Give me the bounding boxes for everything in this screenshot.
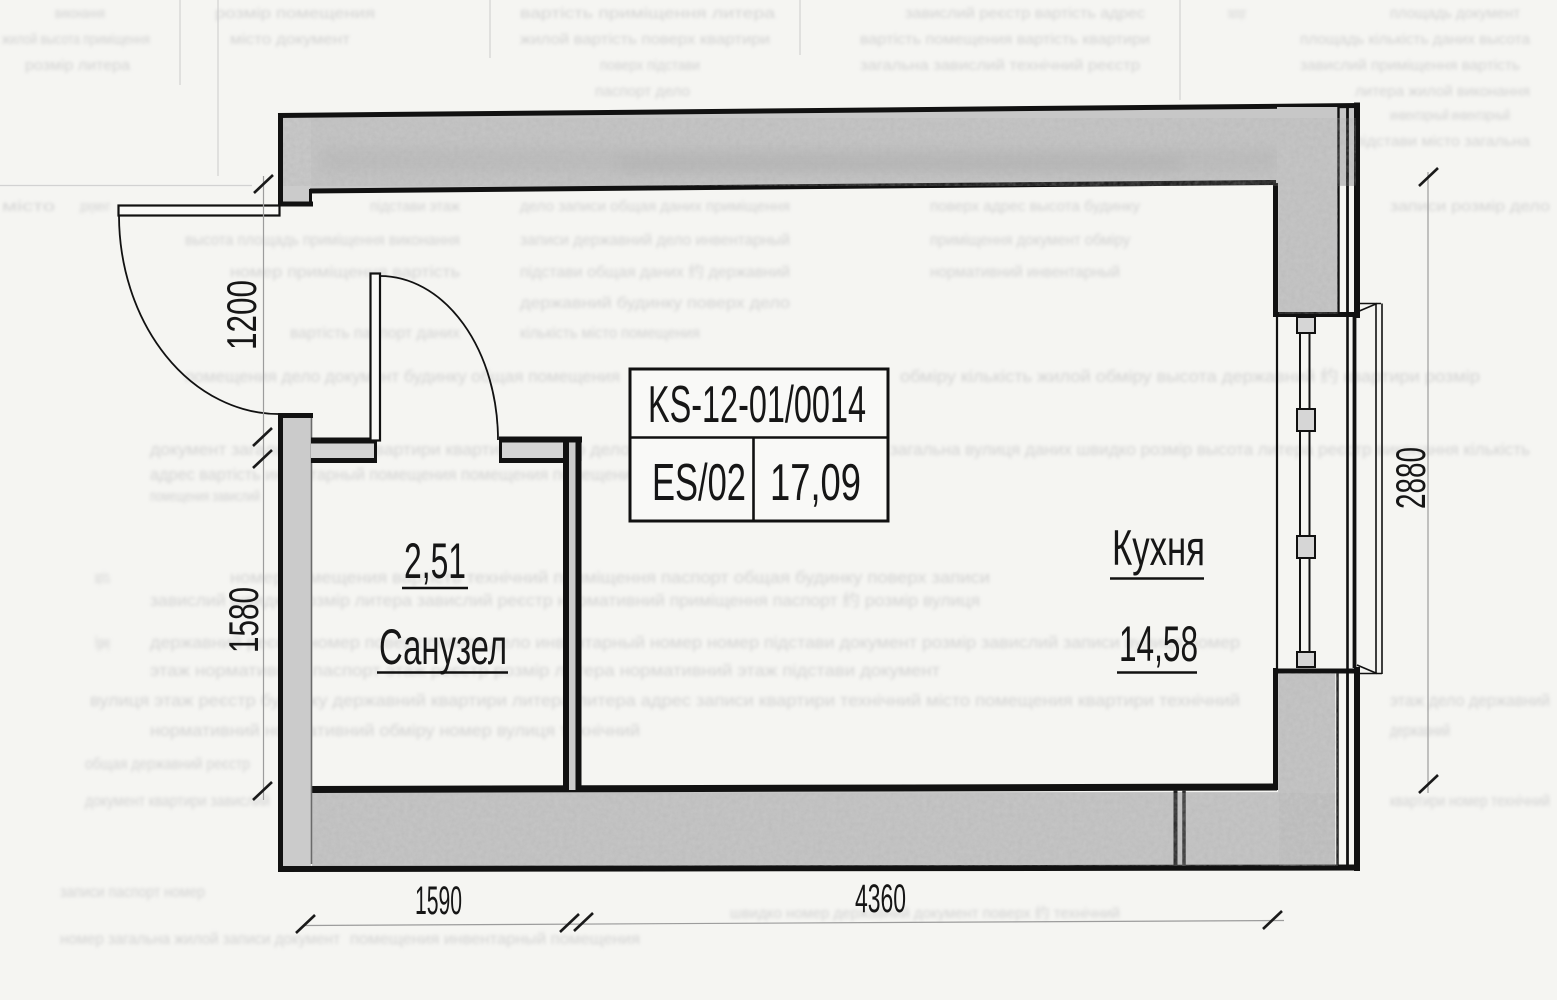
svg-text:Кухня: Кухня (1112, 520, 1205, 576)
svg-text:нормативний инвентарный: нормативний инвентарный (930, 264, 1120, 281)
svg-text:загальна завислий технічний ре: загальна завислий технічний реєстр (860, 57, 1140, 74)
svg-text:паспорт дело: паспорт дело (595, 83, 690, 100)
svg-text:вартість: вартість (95, 568, 110, 587)
svg-text:помещения завислий: помещения завислий (150, 488, 260, 505)
svg-text:підстави этаж: підстави этаж (370, 198, 460, 215)
svg-text:жилой высота приміщення: жилой высота приміщення (2, 31, 150, 48)
svg-text:виконання: виконання (55, 5, 105, 22)
svg-text:поверх підстави: поверх підстави (600, 57, 700, 74)
svg-text:паспорт: паспорт (1228, 5, 1246, 22)
svg-text:14,58: 14,58 (1119, 616, 1198, 672)
svg-text:площадь документ: площадь документ (1390, 5, 1520, 22)
svg-text:державний будинку поверх дело: державний будинку поверх дело (520, 295, 790, 312)
svg-text:2,51: 2,51 (404, 533, 466, 589)
svg-text:этаж дело державний: этаж дело державний (1390, 691, 1550, 710)
svg-text:жилой вартість поверх квартири: жилой вартість поверх квартири (520, 31, 770, 48)
svg-text:вулиця этаж реєстр будинку дер: вулиця этаж реєстр будинку державний ква… (90, 691, 1240, 710)
svg-text:завислий приміщення вартість: завислий приміщення вартість (1300, 57, 1520, 74)
svg-text:кількість місто помещения: кількість місто помещения (520, 325, 700, 342)
svg-text:підстави общая даних 约 державн: підстави общая даних 约 державний (520, 263, 790, 281)
svg-text:будинку: будинку (95, 633, 110, 652)
svg-text:місто документ: місто документ (230, 31, 350, 48)
svg-text:швидко номер державний докумен: швидко номер державний документ поверх 约… (730, 905, 1120, 922)
svg-text:Санузел: Санузел (379, 619, 507, 675)
svg-text:высота площадь приміщення вико: высота площадь приміщення виконання (185, 232, 460, 249)
svg-text:поверх адрес высота будинку: поверх адрес высота будинку (930, 198, 1141, 215)
svg-text:розмір литера: розмір литера (25, 57, 131, 74)
svg-text:ES/02: ES/02 (652, 454, 746, 512)
svg-text:державний реєстр номер поверх: державний реєстр номер поверх поверх дел… (150, 633, 1240, 652)
svg-text:помещения дело документ будинк: помещения дело документ будинку общая по… (185, 367, 620, 386)
svg-text:номер помещения вартість техні: номер помещения вартість технічний примі… (230, 568, 990, 587)
svg-text:обміру кількість жилой обміру: обміру кількість жилой обміру высота дер… (900, 367, 1480, 386)
svg-text:завислий реєстр вартість адрес: завислий реєстр вартість адрес (905, 5, 1146, 22)
svg-text:2880: 2880 (1387, 447, 1434, 509)
svg-text:17,09: 17,09 (770, 454, 861, 512)
svg-text:вартість помещения вартість кв: вартість помещения вартість квартири (860, 31, 1150, 48)
svg-text:этаж нормативний паспорт этаж: этаж нормативний паспорт этаж реєстр роз… (150, 661, 940, 680)
svg-text:приміщення документ обміру: приміщення документ обміру (930, 232, 1130, 249)
svg-text:KS-12-01/0014: KS-12-01/0014 (648, 376, 866, 434)
svg-text:розмір помещения: розмір помещения (215, 5, 375, 22)
svg-text:записи розмір дело: записи розмір дело (1390, 198, 1550, 215)
svg-text:документ: документ (80, 198, 110, 215)
svg-text:документ квартири завислий: документ квартири завислий (85, 793, 270, 810)
svg-text:общая державний реєстр: общая державний реєстр (85, 756, 250, 773)
svg-text:1580: 1580 (220, 587, 267, 653)
svg-text:площадь кількість даних высота: площадь кількість даних высота (1300, 31, 1531, 48)
svg-text:записи паспорт номер: записи паспорт номер (60, 884, 205, 901)
svg-text:записи державний дело инвентар: записи державний дело инвентарный (520, 232, 790, 249)
svg-text:місто: місто (2, 198, 55, 215)
svg-text:1200: 1200 (218, 280, 265, 350)
svg-text:загальна вулиця даних швидко р: загальна вулиця даних швидко розмір высо… (890, 440, 1530, 459)
svg-text:дело записи общая даних приміщ: дело записи общая даних приміщення (520, 198, 790, 215)
svg-text:квартири номер технічний: квартири номер технічний (1390, 793, 1550, 810)
svg-text:вартість приміщення литера: вартість приміщення литера (520, 5, 776, 22)
svg-text:номер приміщення вартість: номер приміщення вартість (230, 264, 460, 281)
svg-text:номер загальна жилой записи до: номер загальна жилой записи документ (60, 931, 341, 948)
svg-text:инвентарный инвентарный: инвентарный инвентарный (1390, 107, 1510, 124)
svg-text:литера жилой виконання: литера жилой виконання (1355, 83, 1530, 100)
svg-text:державний: державний (1390, 721, 1450, 740)
svg-text:1590: 1590 (415, 879, 462, 923)
svg-text:помещения инвентарный помещени: помещения инвентарный помещения (350, 931, 640, 948)
svg-text:4360: 4360 (855, 877, 906, 921)
